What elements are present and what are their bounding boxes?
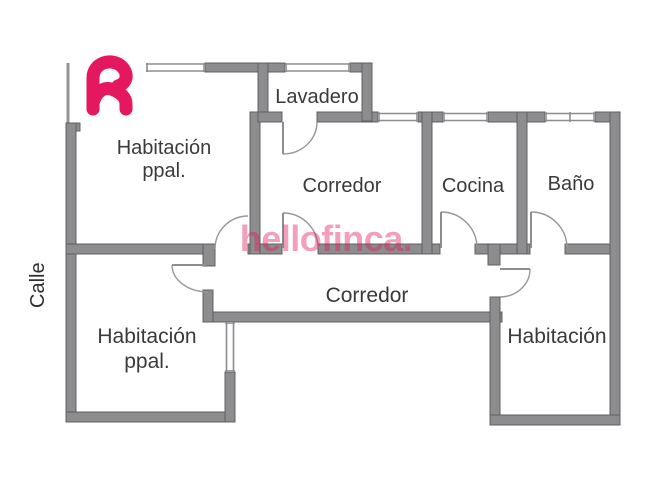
- wall-corridor-left-jamb: [203, 290, 213, 322]
- wall-bottomright-bottom: [490, 415, 620, 425]
- room-label-cocina: Cocina: [442, 175, 505, 197]
- window: [378, 112, 418, 122]
- room-label-bano: Baño: [548, 173, 595, 195]
- door-arc-hab-ppal-bottom: [172, 265, 208, 292]
- door-arc-lavadero: [283, 122, 317, 154]
- wall-right: [610, 112, 620, 425]
- wall-bottomleft-bottom: [66, 412, 235, 422]
- wall-left-thin: [67, 63, 70, 125]
- wall-cocina-bano-divider: [517, 112, 527, 254]
- door-arc-cocina: [441, 212, 477, 248]
- wall-lavadero-right: [362, 63, 372, 121]
- window: [146, 63, 205, 72]
- hellofinca-watermark: hellofinca.: [240, 218, 413, 259]
- wall-jamb-1: [203, 244, 215, 266]
- room-label-lavadero: Lavadero: [275, 86, 358, 108]
- street-label: Calle: [27, 262, 49, 308]
- room-label-habitacion-right: Habitación: [507, 325, 606, 348]
- wall-jamb-2: [488, 244, 500, 265]
- room-label-corredor-top: Corredor: [303, 175, 382, 197]
- wall-bottomright-left: [490, 297, 500, 425]
- window: [545, 112, 595, 122]
- wall-bottomleft-right: [225, 372, 235, 422]
- wall-corridor-bottom: [203, 312, 502, 322]
- room-label-hab-ppal-top-line1: Habitación: [117, 137, 212, 159]
- room-label-hab-ppal-bottom-line2: ppal.: [124, 350, 170, 373]
- wall-top-1: [205, 63, 285, 72]
- window: [225, 322, 235, 372]
- room-label-hab-ppal-top-line2: ppal.: [142, 160, 185, 182]
- wall-lavadero-bottom-1: [258, 112, 282, 122]
- floor-plan-canvas: Habitación ppal. Lavadero Corredor Cocin…: [0, 0, 650, 488]
- room-label-hab-ppal-bottom-line1: Habitación: [97, 325, 196, 348]
- room-label-corredor-main: Corredor: [326, 284, 409, 307]
- wall-left: [66, 123, 76, 422]
- wall-room-divider: [66, 244, 203, 254]
- window: [285, 63, 350, 72]
- hellofinca-h-logo-icon: [93, 62, 126, 109]
- doors: [172, 122, 567, 297]
- window: [443, 112, 488, 122]
- wall-vcorridor-right: [422, 112, 432, 254]
- door-arc-habitacion-right: [500, 269, 530, 297]
- door-arc-bano: [531, 212, 567, 248]
